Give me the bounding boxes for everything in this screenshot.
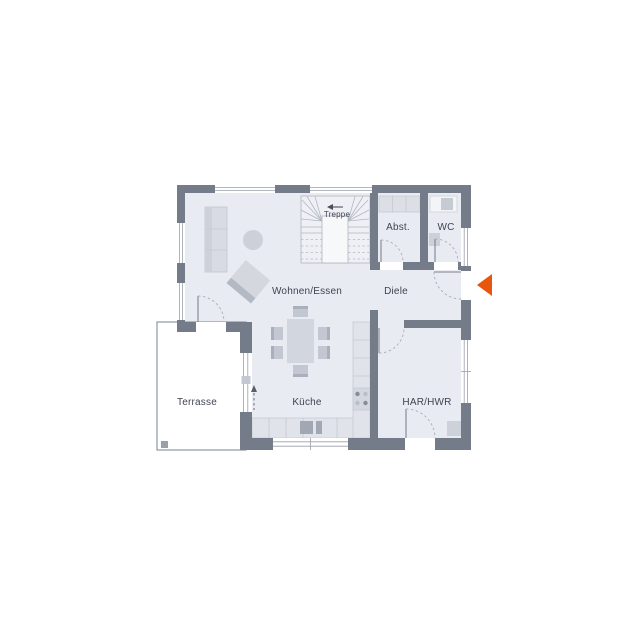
wc-toilet	[430, 196, 457, 212]
window-left-lower	[177, 283, 185, 320]
window-wc	[461, 228, 471, 266]
kitchen-sink	[300, 421, 313, 434]
sliding-door-terrace	[240, 353, 252, 412]
window-left-upper	[177, 223, 185, 263]
floor-plan-drawing: Wohnen/Essen Küche Diele Treppe Abst. WC…	[0, 0, 636, 636]
side-table	[243, 230, 263, 250]
window-top-stairs	[310, 185, 372, 193]
label-treppe: Treppe	[324, 210, 351, 219]
window-kitchen	[273, 438, 348, 450]
stove	[353, 388, 370, 410]
label-diele: Diele	[384, 286, 408, 297]
staircase	[301, 196, 370, 263]
terrace-area	[157, 322, 246, 450]
entrance-arrow-icon	[477, 274, 492, 296]
window-top-living	[215, 185, 275, 193]
storage-shelf	[379, 196, 420, 212]
label-kueche: Küche	[292, 397, 322, 408]
label-har-hwr: HAR/HWR	[402, 397, 451, 408]
wall-unit	[205, 207, 227, 272]
dining-table	[287, 319, 314, 363]
terrace-post	[161, 441, 168, 448]
label-terrasse: Terrasse	[177, 397, 217, 408]
window-utility	[461, 340, 471, 403]
floor-plan-page: Wohnen/Essen Küche Diele Treppe Abst. WC…	[0, 0, 636, 636]
sliding-door-handle	[242, 376, 251, 384]
label-abstellraum: Abst.	[386, 222, 410, 233]
label-wohnen-essen: Wohnen/Essen	[272, 286, 342, 297]
label-wc: WC	[437, 222, 454, 233]
